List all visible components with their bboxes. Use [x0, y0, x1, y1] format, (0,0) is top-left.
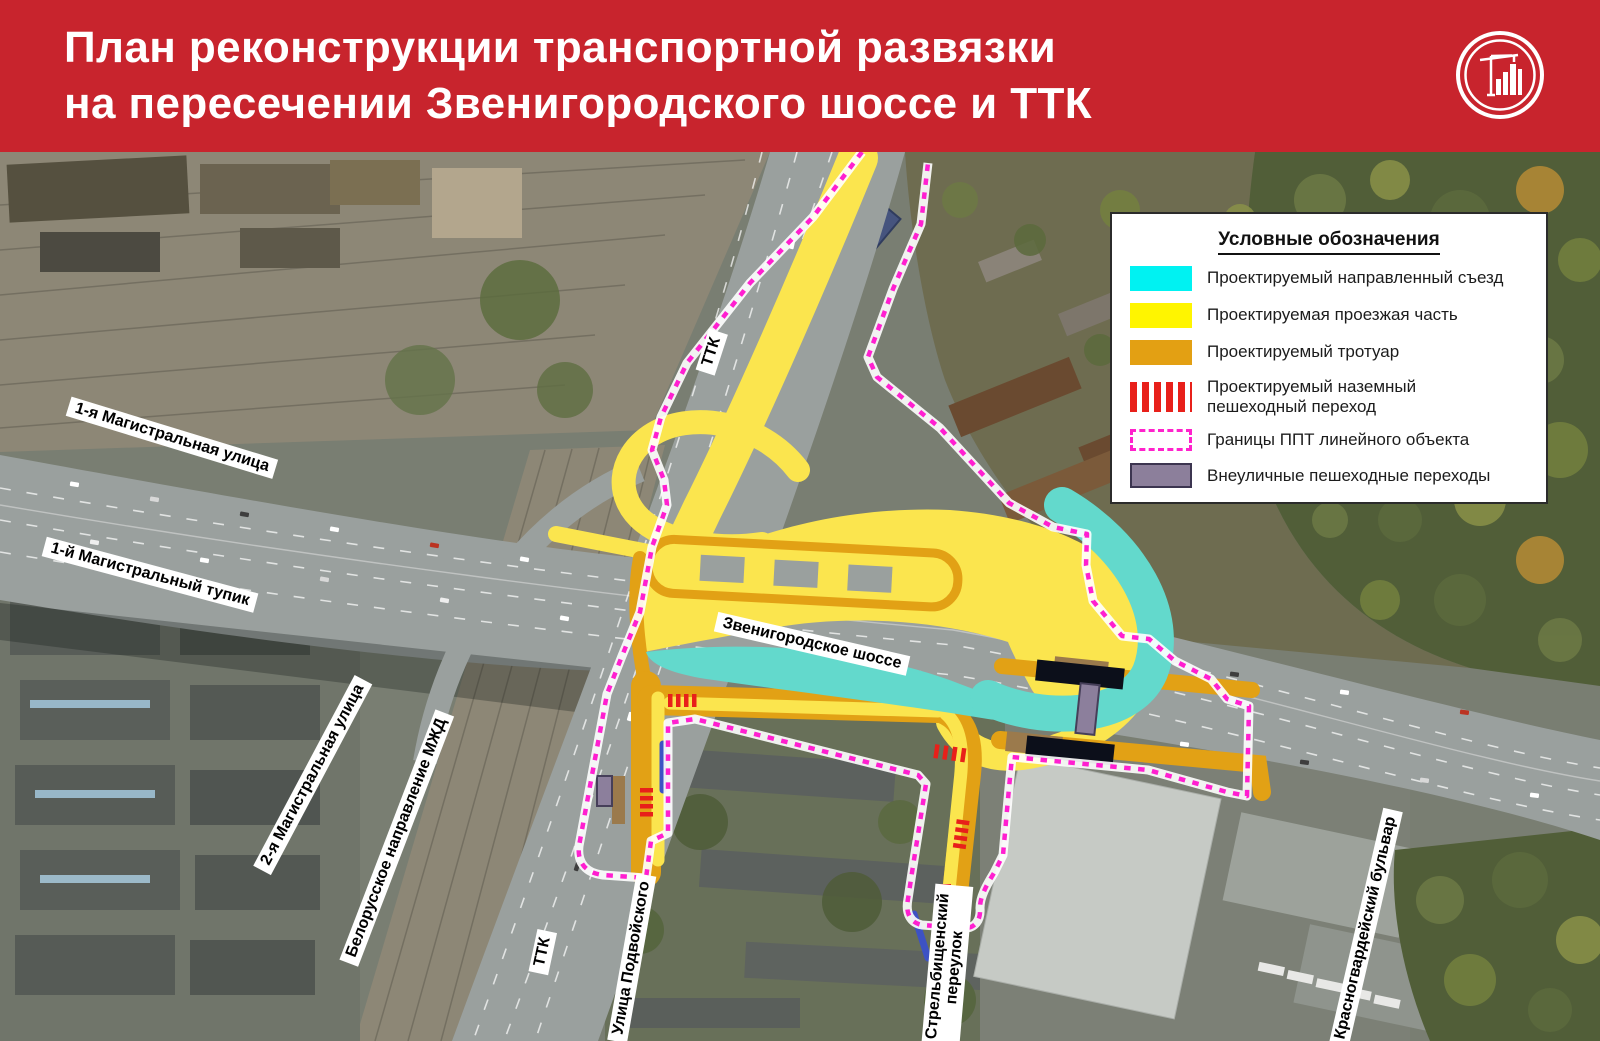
legend-item-carriageway: Проектируемая проезжая часть: [1130, 303, 1528, 328]
header-banner: План реконструкции транспортной развязки…: [0, 0, 1600, 152]
legend-title: Условные обозначения: [1130, 229, 1528, 251]
legend-item-offstreet-crossings: Внеуличные пешеходные переходы: [1130, 463, 1528, 488]
legend-item-directed-ramp: Проектируемый направленный съезд: [1130, 266, 1528, 291]
legend-swatch-cyan: [1130, 266, 1192, 291]
legend-swatch-purple: [1130, 463, 1192, 488]
bus-bay-ladder: [647, 538, 959, 608]
legend-item-sidewalk: Проектируемый тротуар: [1130, 340, 1528, 365]
legend-swatch-orange: [1130, 340, 1192, 365]
legend-swatch-yellow: [1130, 303, 1192, 328]
legend: Условные обозначения Проектируемый напра…: [1110, 212, 1548, 504]
infographic-page: План реконструкции транспортной развязки…: [0, 0, 1600, 1041]
page-title: План реконструкции транспортной развязки…: [64, 20, 1092, 132]
page-title-line2: на пересечении Звенигородского шоссе и Т…: [64, 76, 1092, 132]
legend-item-crosswalk: Проектируемый наземный пешеходный перехо…: [1130, 377, 1528, 417]
page-title-line1: План реконструкции транспортной развязки: [64, 20, 1092, 76]
legend-swatch-magenta-dashed: [1130, 429, 1192, 451]
legend-item-ppt-boundary: Границы ППТ линейного объекта: [1130, 429, 1528, 451]
offstreet-crossing: [1075, 683, 1099, 735]
legend-swatch-red-stripes: [1130, 382, 1192, 412]
offstreet-crossing: [597, 776, 612, 806]
construction-crane-logo-icon: [1454, 29, 1546, 121]
